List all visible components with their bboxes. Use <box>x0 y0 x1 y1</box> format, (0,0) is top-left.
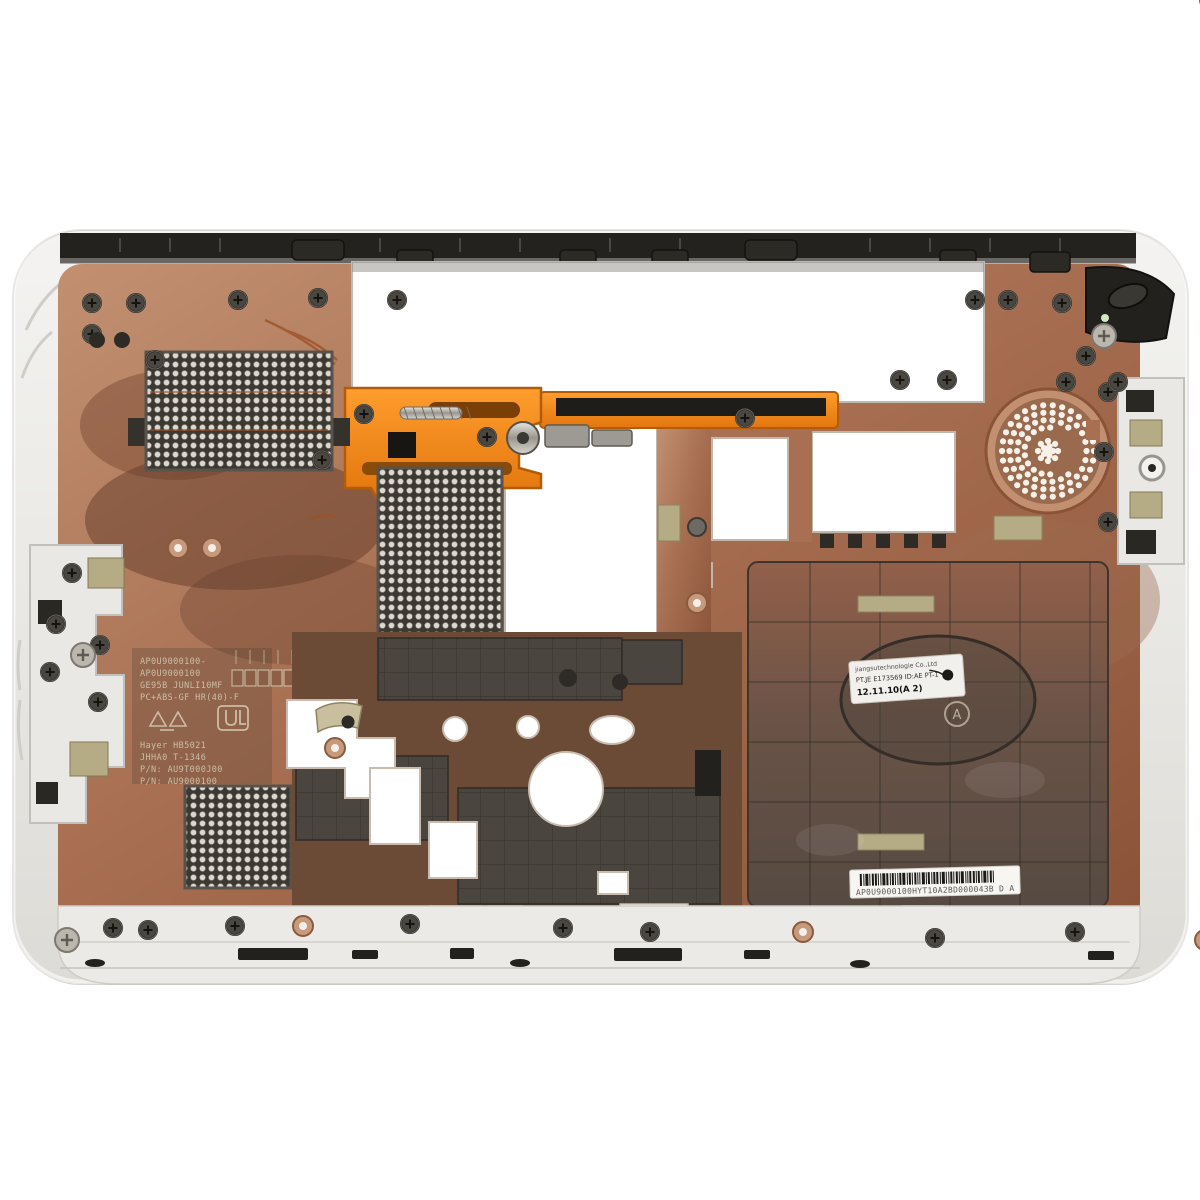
port-shield <box>70 742 108 776</box>
port-opening <box>36 782 58 804</box>
product-photo: AP0U9000100- AP0U9000100 GE95B JUNLI10MF… <box>0 0 1200 1200</box>
serial-barcode-label: AP0U9000100HYT10A2BD000043B D A <box>850 866 1021 898</box>
molded-text-block: AP0U9000100- AP0U9000100 GE95B JUNLI10MF… <box>132 648 272 787</box>
latch-spring <box>400 407 471 419</box>
molded-line-6: JHHA0 T-1346 <box>140 753 206 763</box>
indicator-dot <box>1101 314 1109 322</box>
port-shield <box>1130 420 1162 446</box>
port-shield <box>88 558 124 588</box>
rubber-knob <box>559 669 577 687</box>
hdd-bay-panel: A jiangsutechnologie Co.,Ltd PT.JE E1735… <box>748 562 1108 907</box>
metal-pin <box>688 518 706 536</box>
speaker-tab <box>1086 420 1100 440</box>
rubber-knob <box>89 332 105 348</box>
latch-slot-dark <box>556 398 826 416</box>
molded-line-5: Hayer HB5021 <box>140 741 206 751</box>
manufacture-info-label: jiangsutechnologie Co.,Ltd PT.JE E173569… <box>849 654 966 704</box>
cooling-vent-mesh-mid <box>378 468 502 652</box>
svg-text:A: A <box>953 708 962 723</box>
khaki-tape <box>858 596 934 612</box>
laptop-bottom-case-illustration: AP0U9000100- AP0U9000100 GE95B JUNLI10MF… <box>0 0 1200 1200</box>
rubber-knob <box>612 674 628 690</box>
speaker-grille <box>986 389 1110 513</box>
port-opening <box>1126 530 1156 554</box>
molded-line-1: AP0U9000100- <box>140 657 206 667</box>
rubber-knob <box>114 332 130 348</box>
molded-line-3: GE95B JUNLI10MF <box>140 681 223 691</box>
khaki-tape <box>994 516 1042 540</box>
molded-line-4: PC+ABS-GF HR(40)-F <box>140 693 239 703</box>
bracket-dark <box>695 750 721 796</box>
port-opening <box>1126 390 1154 412</box>
molded-line-2: AP0U9000100 <box>140 669 201 679</box>
khaki-tape <box>858 834 924 850</box>
molded-line-7: P/N: AU9T000J00 <box>140 765 223 775</box>
cooling-vent-mesh-bottom <box>185 786 291 888</box>
port-shield <box>1130 492 1162 518</box>
battery-bay-cutout <box>352 262 984 402</box>
molded-line-8: P/N: AU9000100 <box>140 777 217 787</box>
center-recess <box>287 632 742 910</box>
